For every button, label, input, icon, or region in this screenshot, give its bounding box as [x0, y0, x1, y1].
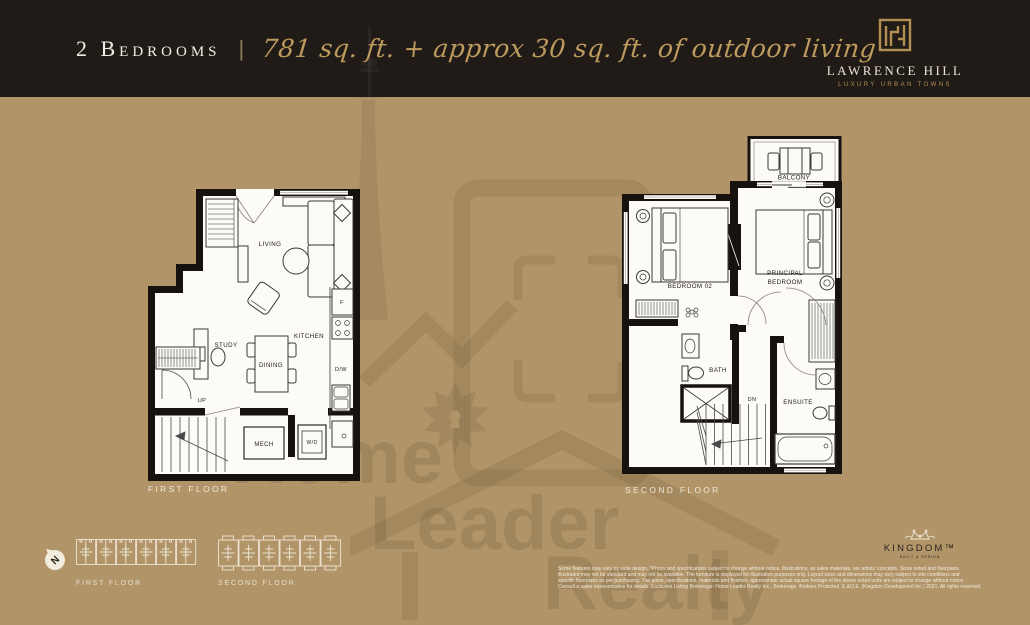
lawrence-hill-monogram-icon	[876, 16, 914, 54]
first-floor-caption: FIRST FLOOR	[148, 484, 229, 494]
second-floor-plan: BALCONY BEDROOM 02 PRINCIPAL BEDROOM BAT…	[622, 136, 844, 482]
lawrence-hill-tagline: LUXURY URBAN TOWNS	[810, 82, 980, 88]
sofa	[308, 199, 353, 299]
closet-hatch	[206, 199, 238, 247]
round-table	[283, 248, 309, 274]
room-label-ensuite: ENSUITE	[783, 399, 813, 406]
maple-leaf-watermark	[422, 382, 488, 456]
keyplan-second-floor-caption: SECOND FLOOR	[218, 580, 296, 587]
room-label-balcony: BALCONY	[778, 175, 810, 182]
second-floor-caption: SECOND FLOOR	[625, 485, 721, 495]
room-label-mech: MECH	[254, 442, 273, 448]
bedroom2-bed	[652, 208, 728, 282]
room-label-kitchen: KITCHEN	[294, 333, 324, 340]
room-label-bedroom2: BEDROOM 02	[668, 283, 713, 290]
room-label-living: LIVING	[259, 241, 282, 248]
nightstand-lamp	[820, 276, 834, 290]
disclaimer-line: Consult a sales representative for detai…	[558, 584, 1024, 590]
kingdom-name: KINGDOM™	[884, 543, 957, 554]
bookcase	[238, 246, 248, 282]
keyplan-second-floor	[218, 535, 344, 572]
kingdom-logo: KINGDOM™ BUILT & DESIGN	[878, 528, 966, 564]
label-fridge: F	[340, 300, 344, 306]
room-label-principal-2: BEDROOM	[768, 279, 803, 286]
nightstand-lamp	[820, 193, 834, 207]
label-stairs-up: UP	[198, 398, 206, 404]
flyer-canvas: Home Leader Realty	[0, 0, 1030, 625]
disclaimer-text: Some features may vary by suite design. …	[558, 566, 1024, 590]
nightstand-lamp	[637, 210, 650, 223]
first-floor-plan: LIVING STUDY DINING KITCHEN F D/W MECH W…	[148, 189, 360, 481]
north-compass-icon: N	[42, 546, 68, 572]
nightstand-lamp	[637, 271, 650, 284]
room-label-dining: DINING	[259, 362, 283, 369]
room-label-study: STUDY	[215, 342, 238, 349]
crown-icon	[905, 530, 935, 539]
entry-closet	[156, 347, 200, 369]
lawrence-hill-name: LAWRENCE HILL	[810, 63, 980, 79]
keyplan-first-floor-caption: FIRST FLOOR	[76, 580, 142, 587]
kingdom-tagline: BUILT & DESIGN	[900, 555, 940, 559]
keyplan-first-floor	[76, 539, 198, 567]
lawrence-hill-logo: LAWRENCE HILL LUXURY URBAN TOWNS	[810, 16, 980, 88]
bedroom2-closet	[636, 300, 678, 317]
area-subtitle: 781 sq. ft. + approx 30 sq. ft. of outdo…	[261, 34, 878, 63]
principal-bed	[756, 210, 832, 274]
room-label-principal-1: PRINCIPAL	[767, 270, 803, 277]
bedrooms-title: 2 Bedrooms	[76, 36, 221, 62]
label-stairs-down: DN	[748, 397, 757, 403]
header-separator: |	[239, 36, 245, 62]
label-dishwasher: D/W	[335, 367, 347, 373]
label-washer-dryer: W/D	[307, 440, 318, 446]
room-label-bath: BATH	[709, 367, 727, 374]
header-bar: 2 Bedrooms | 781 sq. ft. + approx 30 sq.…	[0, 0, 1030, 97]
